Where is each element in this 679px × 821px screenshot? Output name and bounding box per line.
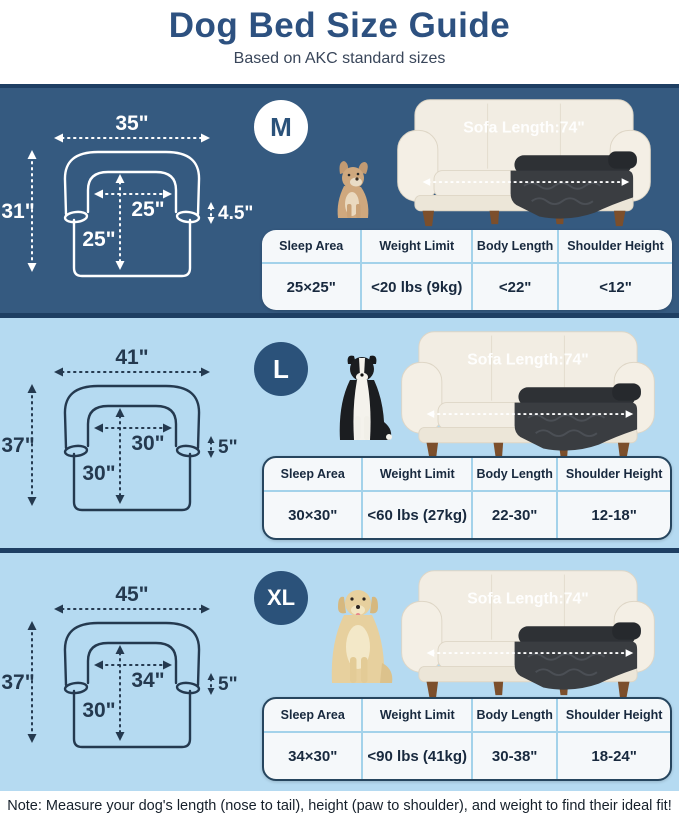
dim-top-width: 35": [115, 112, 148, 135]
size-badge-xl: XL: [254, 571, 308, 625]
dim-side-drop: 4.5": [218, 203, 252, 224]
size-badge-m: M: [254, 100, 308, 154]
col-shoulder-height: Shoulder Height: [556, 458, 670, 492]
dim-left-height: 37": [2, 434, 35, 457]
dim-left-height: 31": [2, 200, 35, 223]
dim-side-drop: 5": [218, 674, 238, 695]
spec-table-l: Sleep Area Weight Limit Body Length Shou…: [262, 456, 672, 540]
dim-side-drop: 5": [218, 437, 238, 458]
sofa-illustration-l: Sofa Length:74": [394, 326, 662, 460]
col-body-length: Body Length: [471, 230, 557, 264]
size-badge-label: XL: [267, 585, 295, 611]
section-size-xl: 45" 37" 34" 30" 5" XL: [0, 548, 679, 791]
sofa-illustration-m: Sofa Length:74": [390, 94, 658, 228]
dim-inner-width: 30": [131, 432, 164, 455]
sofa-length-label: Sofa Length:74": [463, 119, 584, 136]
col-body-length: Body Length: [471, 458, 556, 492]
section-size-m: 35" 31" 25" 25" 4.5" M: [0, 84, 679, 313]
header: Dog Bed Size Guide Based on AKC standard…: [0, 0, 679, 84]
dimension-arrows: [28, 605, 215, 744]
size-badge-label: L: [273, 354, 289, 385]
size-badge-l: L: [254, 342, 308, 396]
val-weight-limit: <60 lbs (27kg): [361, 492, 471, 538]
col-sleep-area: Sleep Area: [264, 458, 361, 492]
val-shoulder-height: 12-18": [556, 492, 670, 538]
val-body-length: 30-38": [471, 733, 556, 779]
val-body-length: <22": [471, 264, 557, 310]
col-weight-limit: Weight Limit: [361, 458, 471, 492]
dim-inner-width: 25": [131, 198, 164, 221]
dim-inner-width: 34": [131, 669, 164, 692]
sofa-illustration-xl: Sofa Length:74": [394, 565, 662, 699]
val-shoulder-height: 18-24": [556, 733, 670, 779]
val-sleep-area: 25×25": [262, 264, 360, 310]
size-badge-label: M: [270, 112, 292, 143]
page-title: Dog Bed Size Guide: [0, 0, 679, 46]
measure-note: Note: Measure your dog's length (nose to…: [7, 798, 672, 814]
val-shoulder-height: <12": [557, 264, 672, 310]
dimension-arrows: [28, 134, 215, 273]
col-body-length: Body Length: [471, 699, 556, 733]
sofa-length-label: Sofa Length:74": [467, 351, 588, 368]
col-sleep-area: Sleep Area: [264, 699, 361, 733]
sofa-length-label: Sofa Length:74": [467, 590, 588, 607]
bed-dimension-diagram-xl: 45" 37" 34" 30" 5": [2, 565, 252, 760]
val-sleep-area: 34×30": [264, 733, 361, 779]
col-weight-limit: Weight Limit: [361, 699, 471, 733]
dog-photo-border-collie: [326, 352, 398, 444]
val-weight-limit: <90 lbs (41kg): [361, 733, 471, 779]
spec-table-m: Sleep Area Weight Limit Body Length Shou…: [262, 230, 672, 310]
dim-inner-height: 30": [82, 462, 115, 485]
col-shoulder-height: Shoulder Height: [557, 230, 672, 264]
val-weight-limit: <20 lbs (9kg): [360, 264, 471, 310]
footer: Note: Measure your dog's length (nose to…: [0, 791, 679, 821]
col-weight-limit: Weight Limit: [360, 230, 471, 264]
dim-top-width: 41": [115, 346, 148, 369]
dim-inner-height: 30": [82, 699, 115, 722]
dim-left-height: 37": [2, 671, 35, 694]
dimension-arrows: [28, 368, 215, 507]
section-size-l: 41" 37" 30" 30" 5" L: [0, 313, 679, 548]
page-subtitle: Based on AKC standard sizes: [0, 50, 679, 68]
dim-inner-height: 25": [82, 228, 115, 251]
bed-dimension-diagram-l: 41" 37" 30" 30" 5": [2, 328, 252, 523]
dog-bed-size-guide: Dog Bed Size Guide Based on AKC standard…: [0, 0, 679, 821]
bed-dimension-diagram-m: 35" 31" 25" 25" 4.5": [2, 94, 252, 289]
val-body-length: 22-30": [471, 492, 556, 538]
val-sleep-area: 30×30": [264, 492, 361, 538]
dog-photo-golden-retriever: [318, 585, 398, 687]
dog-photo-french-bulldog: [330, 160, 376, 222]
dim-top-width: 45": [115, 583, 148, 606]
col-shoulder-height: Shoulder Height: [556, 699, 670, 733]
col-sleep-area: Sleep Area: [262, 230, 360, 264]
spec-table-xl: Sleep Area Weight Limit Body Length Shou…: [262, 697, 672, 781]
